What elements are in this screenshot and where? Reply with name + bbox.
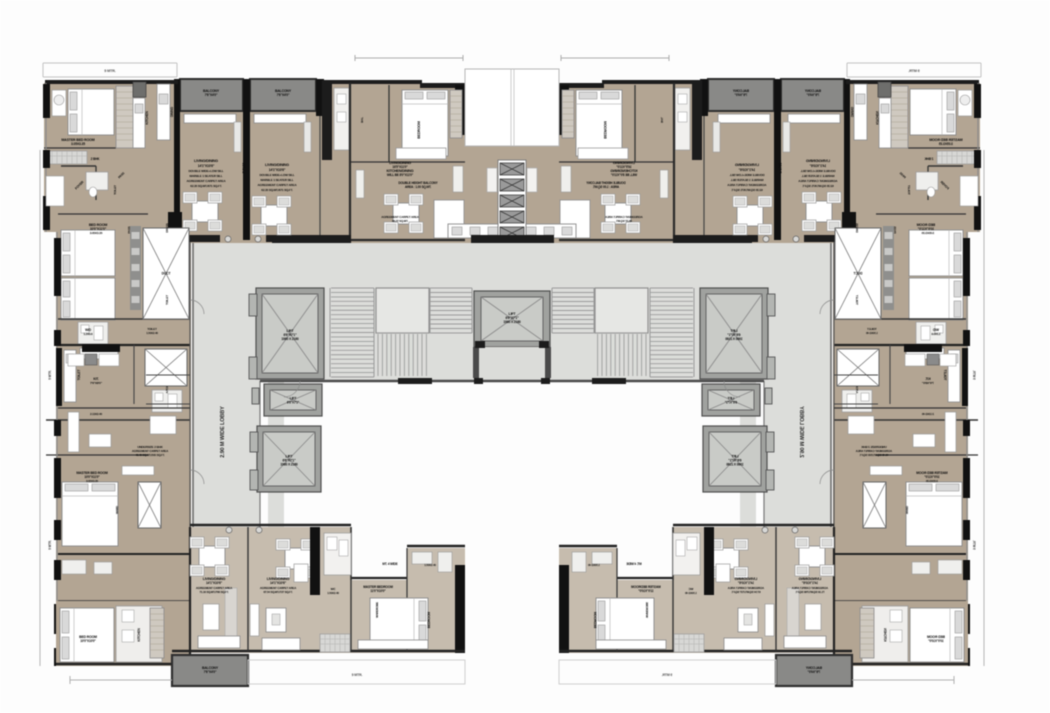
- svg-text:1980 X 2160: 1980 X 2160: [503, 320, 521, 324]
